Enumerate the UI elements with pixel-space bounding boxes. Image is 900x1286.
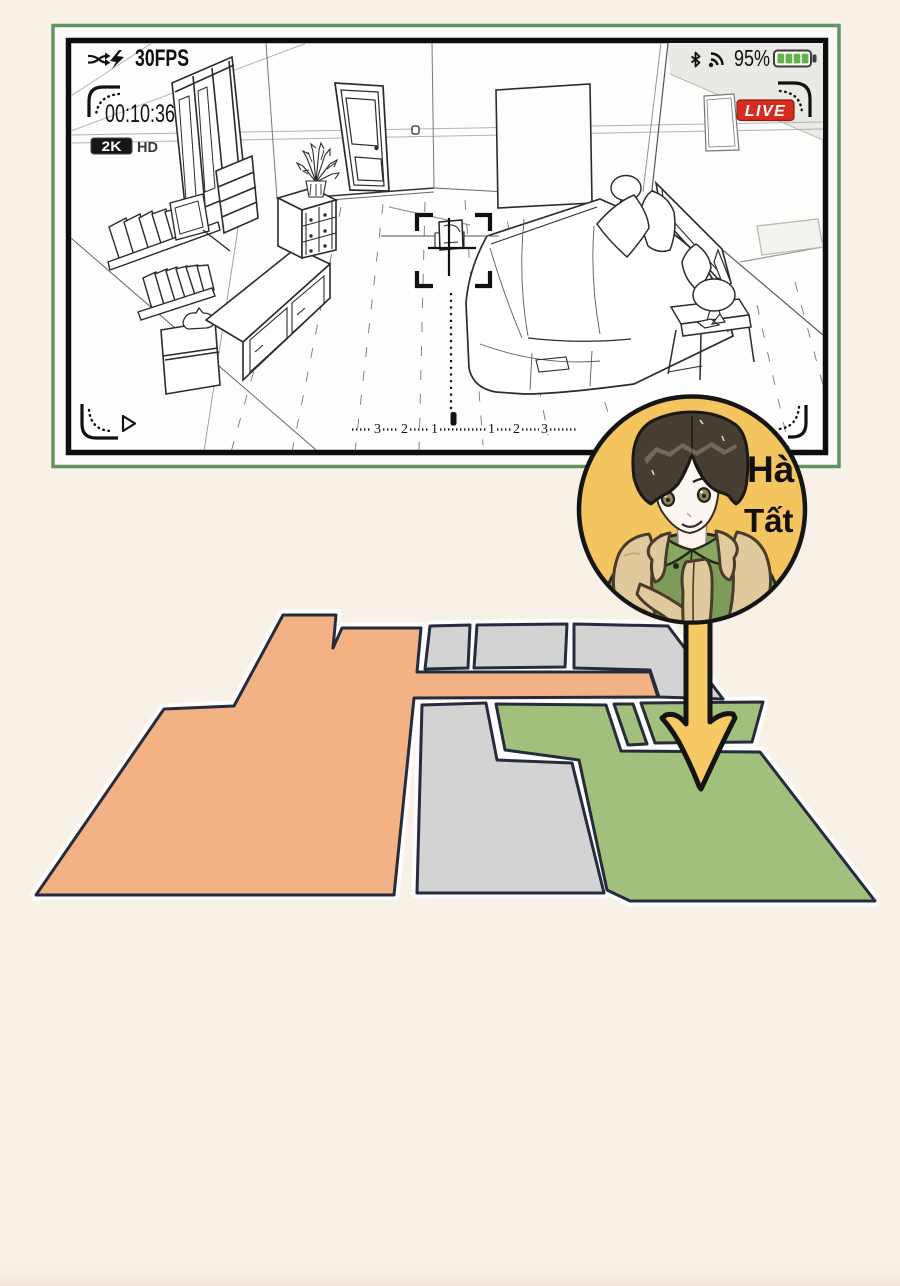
svg-text:2K: 2K (102, 138, 122, 154)
svg-text:HD: HD (137, 140, 158, 156)
svg-text:95%: 95% (734, 45, 770, 71)
svg-text:00:10:36: 00:10:36 (105, 100, 175, 128)
svg-text:LIVE: LIVE (745, 103, 787, 120)
svg-text:Hà: Hà (747, 449, 795, 490)
svg-text:3: 3 (541, 422, 548, 437)
svg-text:1: 1 (431, 422, 438, 437)
svg-text:Tất: Tất (744, 502, 794, 539)
svg-text:1: 1 (488, 422, 495, 437)
svg-text:30FPS: 30FPS (135, 45, 189, 72)
svg-text:2: 2 (513, 422, 520, 437)
svg-text:2: 2 (401, 422, 408, 437)
svg-text:3: 3 (374, 422, 381, 437)
